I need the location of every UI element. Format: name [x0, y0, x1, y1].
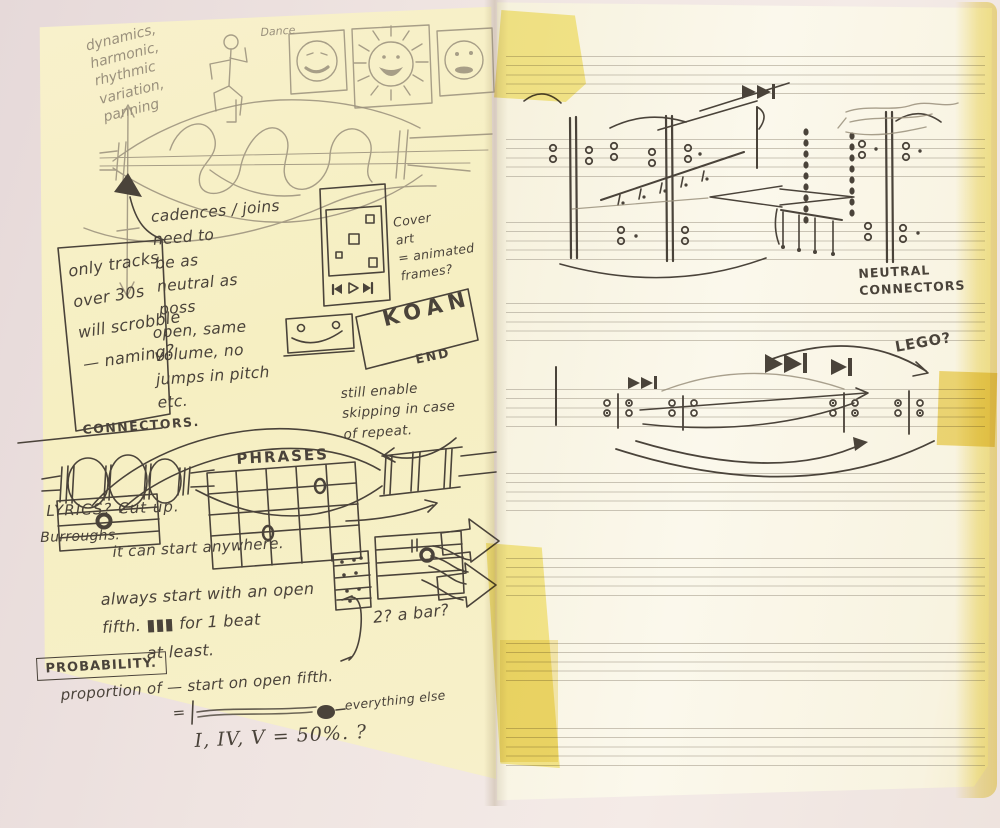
- skip-forward-icon: [363, 283, 372, 293]
- skip-forward-icon-a: [628, 376, 657, 389]
- skip-back-icon: [333, 284, 342, 294]
- note-burroughs: Burroughs.: [40, 527, 120, 546]
- notation-system-1: [524, 83, 941, 278]
- notation-system-2: [556, 346, 934, 477]
- tape-right-edge: [937, 371, 998, 447]
- note-still-enable: still enable skipping in case of repeat.: [340, 376, 457, 445]
- label-neutral-connectors: NEUTRAL CONNECTORS: [858, 260, 966, 299]
- notebook-photo: dynamics, harmonic, rhythmic variation, …: [0, 0, 1000, 828]
- music-player-sketch: [320, 184, 390, 306]
- play-icon: [349, 283, 358, 293]
- skip-forward-icon-b: [765, 353, 807, 373]
- note-equals: =: [172, 703, 186, 722]
- tape-top-spine: [494, 10, 586, 102]
- note-dance: Dance: [260, 24, 296, 39]
- bracket-mark: [341, 596, 361, 661]
- note-open-same: open, same volume, no jumps in pitch etc…: [152, 314, 272, 415]
- tape-spine-bottom-overlap: [500, 640, 558, 762]
- note-cover-art: Cover art = animated frames?: [392, 203, 478, 285]
- dancing-figure-sketch: [210, 35, 247, 122]
- smiley-frames-sketch: [289, 25, 494, 108]
- pencil-arc: [662, 373, 844, 391]
- skip-forward-icon-c: [831, 358, 852, 376]
- loop-cell-sketch: [284, 314, 354, 356]
- strikethrough-scribble: [192, 701, 345, 724]
